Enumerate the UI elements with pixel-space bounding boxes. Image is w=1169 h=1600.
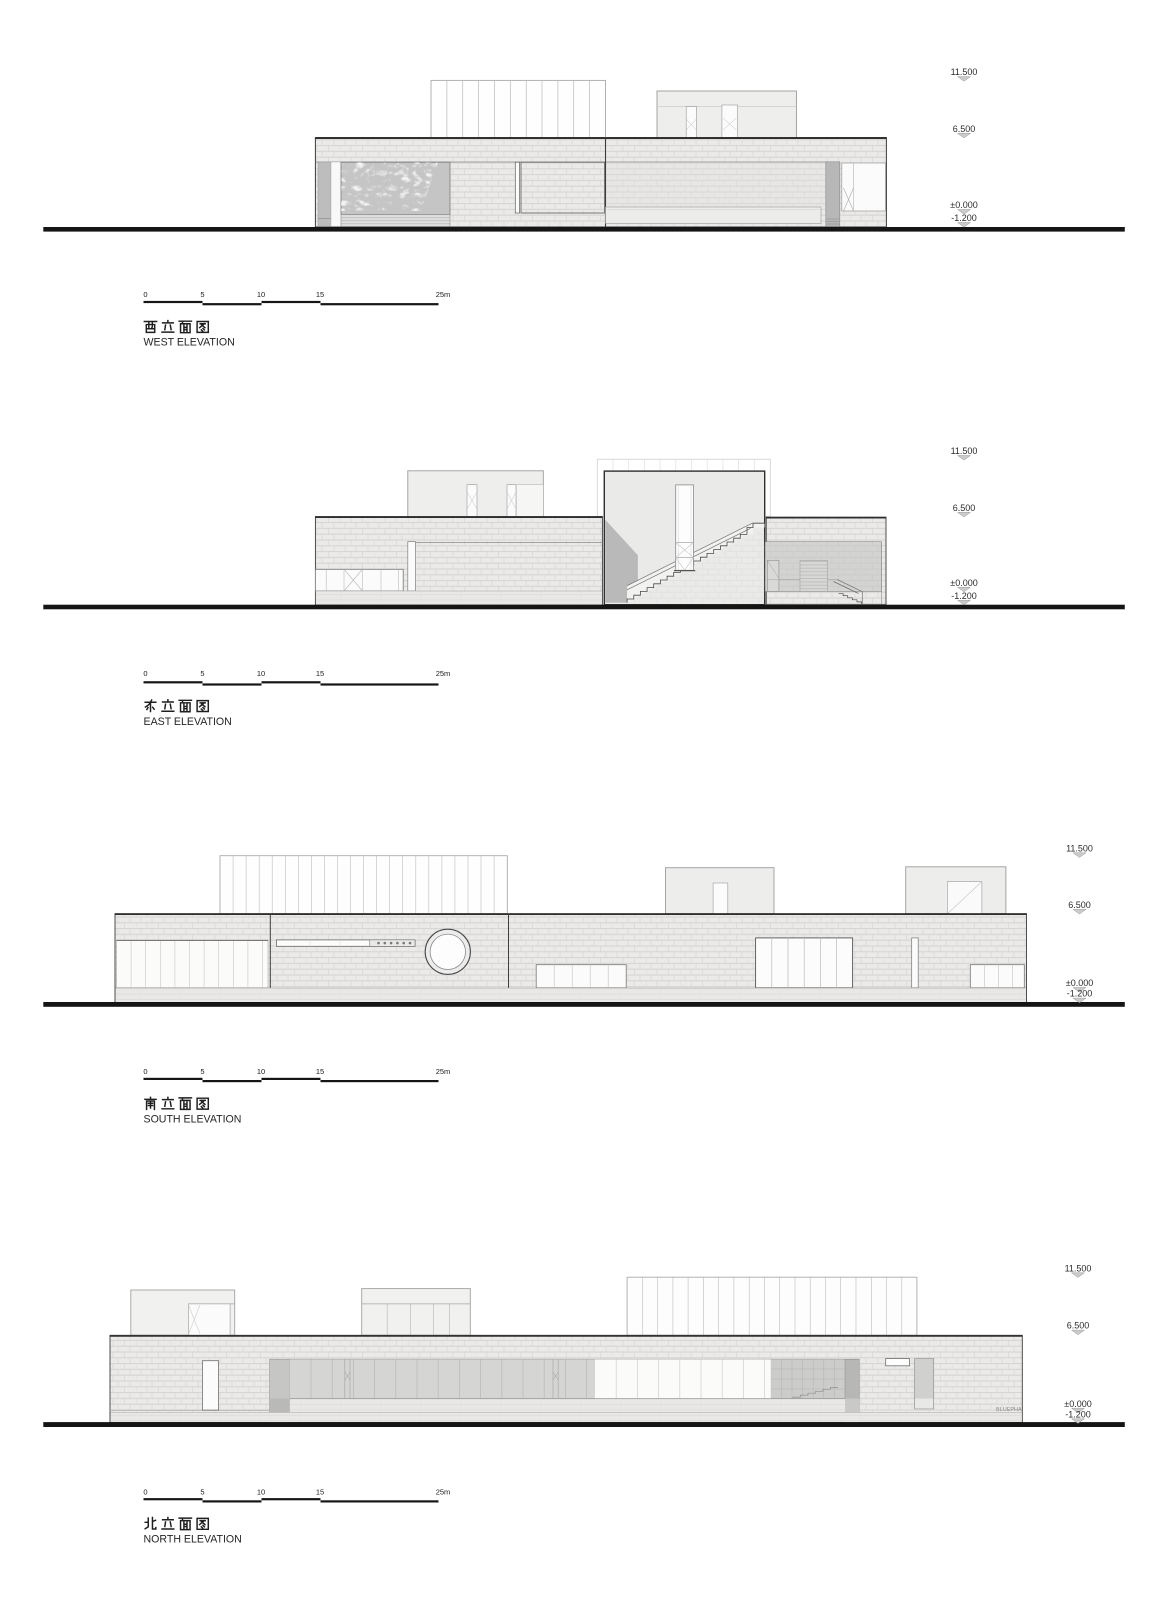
svg-text:-1.200: -1.200 xyxy=(951,213,977,223)
svg-text:10: 10 xyxy=(257,1067,265,1076)
svg-text:±0.000: ±0.000 xyxy=(1066,978,1093,988)
svg-text:EAST ELEVATION: EAST ELEVATION xyxy=(144,716,232,728)
svg-text:5: 5 xyxy=(200,1488,204,1497)
svg-text:±0.000: ±0.000 xyxy=(1064,1399,1091,1409)
svg-text:25m: 25m xyxy=(436,1488,451,1497)
svg-text:10: 10 xyxy=(257,1488,265,1497)
svg-text:25m: 25m xyxy=(436,669,451,678)
svg-text:±0.000: ±0.000 xyxy=(950,578,977,588)
svg-text:WEST ELEVATION: WEST ELEVATION xyxy=(144,337,235,349)
svg-text:11.500: 11.500 xyxy=(1066,843,1093,853)
svg-text:-1.200: -1.200 xyxy=(1067,989,1093,999)
svg-text:25m: 25m xyxy=(436,1067,451,1076)
svg-text:6.500: 6.500 xyxy=(1067,1321,1090,1331)
svg-text:NORTH ELEVATION: NORTH ELEVATION xyxy=(144,1534,242,1546)
svg-text:10: 10 xyxy=(257,669,265,678)
svg-text:15: 15 xyxy=(316,1067,324,1076)
svg-text:0: 0 xyxy=(143,669,147,678)
svg-text:11.500: 11.500 xyxy=(951,67,978,77)
svg-text:SOUTH ELEVATION: SOUTH ELEVATION xyxy=(144,1114,242,1126)
svg-text:11.500: 11.500 xyxy=(951,446,978,456)
svg-text:-1.200: -1.200 xyxy=(1065,1409,1091,1419)
svg-text:5: 5 xyxy=(200,290,204,299)
svg-text:BLUEPHA: BLUEPHA xyxy=(996,1407,1022,1413)
svg-text:0: 0 xyxy=(143,1488,147,1497)
svg-text:6.500: 6.500 xyxy=(1068,900,1091,910)
svg-text:6.500: 6.500 xyxy=(953,124,976,134)
svg-text:15: 15 xyxy=(316,1488,324,1497)
svg-text:-1.200: -1.200 xyxy=(951,591,977,601)
svg-text:5: 5 xyxy=(200,669,204,678)
svg-text:6.500: 6.500 xyxy=(953,503,976,513)
svg-text:10: 10 xyxy=(257,290,265,299)
svg-text:15: 15 xyxy=(316,669,324,678)
svg-text:25m: 25m xyxy=(436,290,451,299)
svg-text:5: 5 xyxy=(200,1067,204,1076)
svg-text:±0.000: ±0.000 xyxy=(950,200,977,210)
svg-text:0: 0 xyxy=(143,1067,147,1076)
svg-text:0: 0 xyxy=(143,290,147,299)
svg-text:15: 15 xyxy=(316,290,324,299)
svg-text:11.500: 11.500 xyxy=(1065,1263,1092,1273)
